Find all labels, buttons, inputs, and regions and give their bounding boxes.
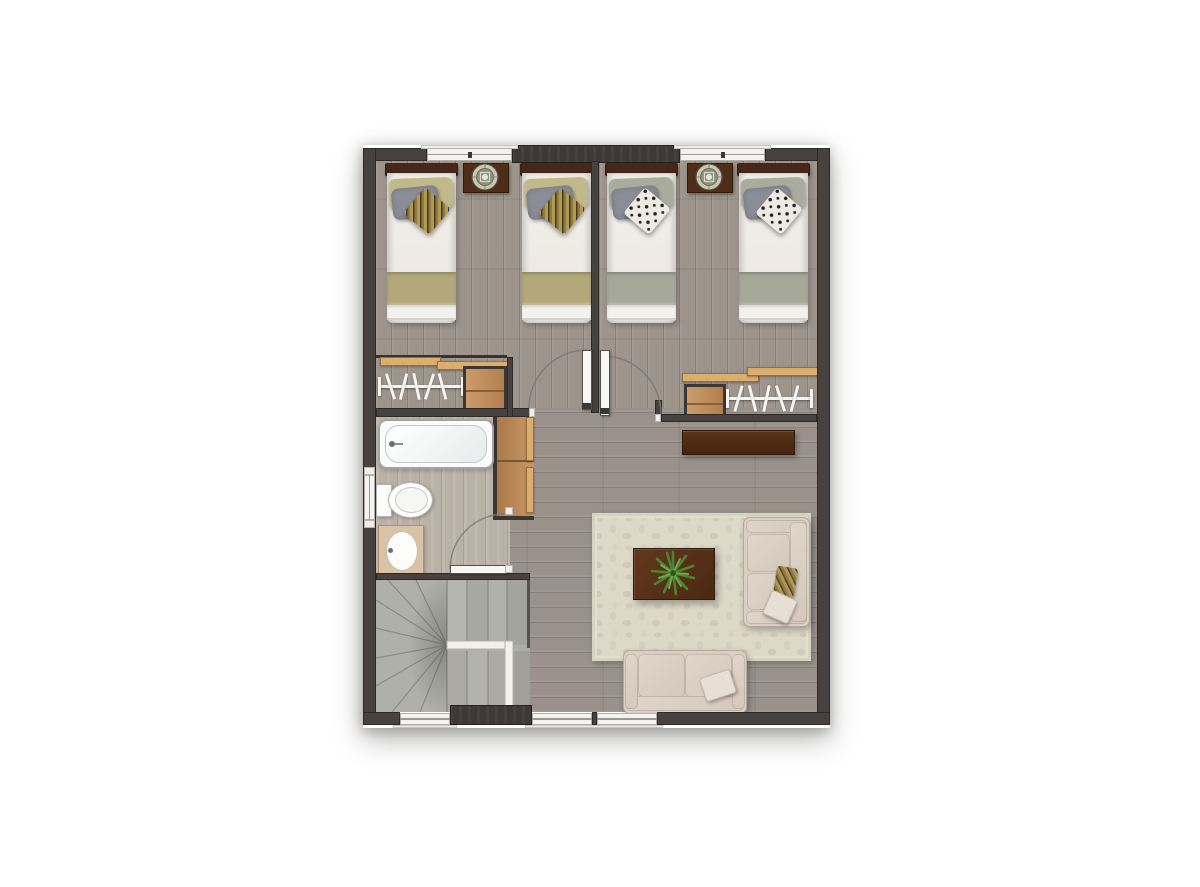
door-bedroom-right [600,350,610,416]
door-bathroom [450,565,507,574]
door-swing-arcs [363,145,830,728]
door-stop [529,408,535,417]
floor-plan [363,145,830,728]
door-bedroom-left [582,350,592,410]
floor-plan-canvas [0,0,1200,887]
door-stop [655,414,661,422]
door-stop [505,507,513,515]
door-stop [505,565,513,573]
